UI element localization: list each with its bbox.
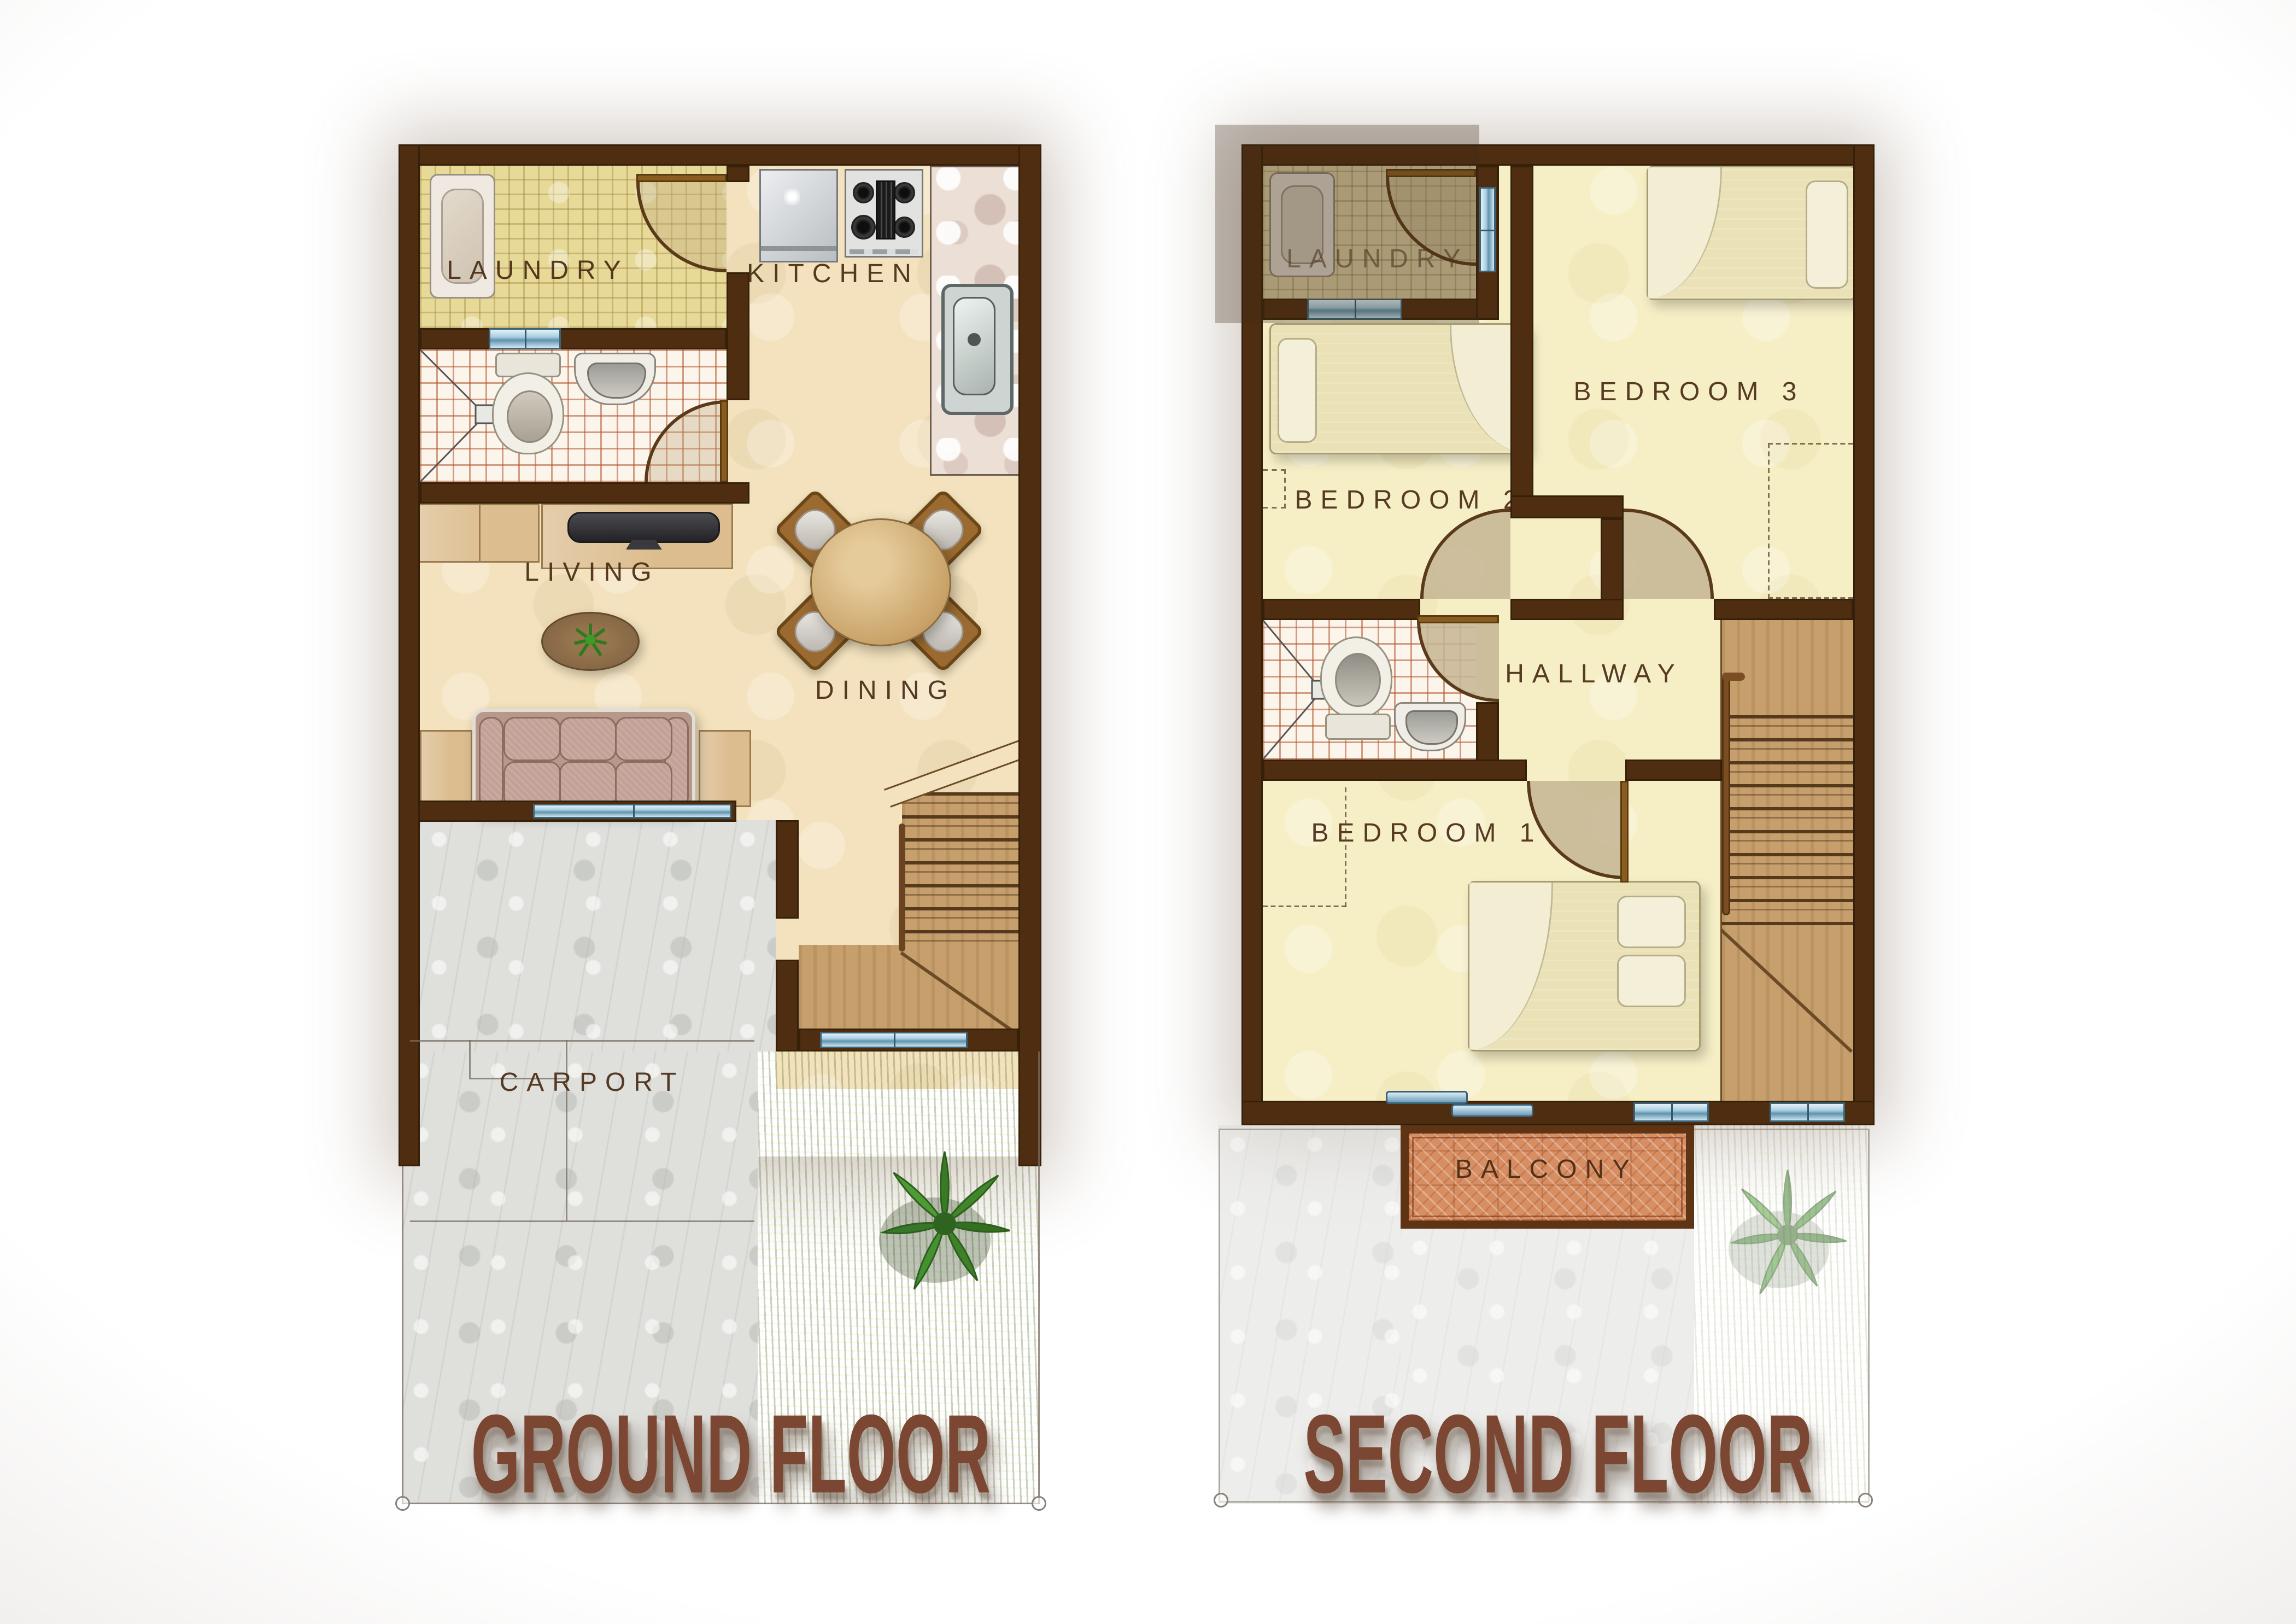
wall <box>727 272 749 400</box>
room-label-laundry: LAUNDRY <box>423 258 653 287</box>
toilet2-tank <box>1325 714 1391 740</box>
wall <box>420 328 727 349</box>
wall <box>1625 760 1722 781</box>
ground-floor-title: GROUND FLOOR <box>471 1388 982 1518</box>
front-window <box>1633 1102 1709 1122</box>
wall <box>1714 599 1853 620</box>
ground-floor-plan: LAUNDRY KITCHEN LIVING DINING CARPORT <box>399 144 1041 1362</box>
laundry-window <box>489 328 561 349</box>
slab-joint <box>410 1040 754 1042</box>
tv-cabinet <box>417 504 540 563</box>
carport-floor <box>420 820 776 1051</box>
boundary-line <box>402 1166 403 1504</box>
floorplan-canvas: LAUNDRY KITCHEN LIVING DINING CARPORT LA… <box>0 0 2296 1624</box>
staircase-flight <box>902 792 1018 945</box>
exterior-wall-top <box>399 144 1041 166</box>
room-label-hallway: HALLWAY <box>1455 661 1733 691</box>
toilet-bowl <box>492 372 564 454</box>
wall <box>420 482 749 504</box>
slab-joint <box>410 1220 754 1222</box>
survey-peg <box>1214 1493 1228 1508</box>
stair-handrail <box>1722 673 1730 915</box>
balcony-slider-panel <box>1386 1091 1468 1104</box>
second-floor-plan: LAUNDRY BEDROOM 2 BEDROOM 3 <box>1241 144 1875 1362</box>
survey-peg <box>1858 1493 1873 1508</box>
exterior-wall-right <box>1853 144 1875 1125</box>
exterior-wall-right <box>1018 144 1041 1166</box>
bed-pillow <box>1806 180 1848 289</box>
ghost-overlay <box>1215 125 1479 323</box>
bedroom1-door-leaf <box>1620 781 1629 883</box>
bedroom3-side-window <box>1479 187 1496 272</box>
wall <box>1510 166 1533 518</box>
wall <box>776 820 799 919</box>
dining-table <box>810 518 951 646</box>
laundry-door-leaf <box>636 174 727 182</box>
survey-peg <box>395 1496 410 1511</box>
survey-peg <box>1032 1496 1046 1511</box>
stair-stringer <box>899 823 905 951</box>
toilet2-bowl <box>1320 636 1392 718</box>
wall <box>1510 599 1624 620</box>
boundary-line <box>1038 1051 1040 1504</box>
living-window <box>533 804 731 819</box>
wall <box>727 166 749 182</box>
potted-plant-icon <box>571 620 610 659</box>
stair-edge <box>1720 620 1722 1101</box>
second-floor-title: SECOND FLOOR <box>1298 1388 1818 1518</box>
room-label-balcony: BALCONY <box>1415 1156 1678 1186</box>
stove-cooktop <box>845 169 923 258</box>
wall <box>1510 495 1624 518</box>
exterior-wall-left <box>399 144 420 1166</box>
room-label-bedroom3: BEDROOM 3 <box>1542 379 1837 408</box>
balcony-slider-panel <box>1451 1104 1533 1117</box>
slab-joint <box>566 1079 567 1220</box>
bed-fold <box>1648 167 1722 299</box>
bedroom3-bed <box>1647 166 1856 300</box>
room-label-carport: CARPORT <box>461 1070 723 1099</box>
bed-fold <box>1469 883 1553 1050</box>
sofa-side-table-left <box>420 730 472 807</box>
bed-pillow <box>1617 955 1686 1007</box>
bedroom1-bed <box>1468 881 1701 1051</box>
bathroom2-door-leaf <box>1417 615 1499 623</box>
staircase-treads <box>1722 715 1853 928</box>
bed-pillow <box>1278 338 1317 443</box>
wall <box>1263 599 1420 620</box>
room-label-dining: DINING <box>746 677 1025 707</box>
closet-outline <box>1263 787 1346 907</box>
sofa-side-table-right <box>699 730 751 807</box>
closet-line <box>1263 906 1346 909</box>
closet-outline <box>1768 443 1853 599</box>
bedroom2-bed <box>1269 323 1528 454</box>
kitchen-sink <box>941 284 1014 415</box>
sofa-armrest-left <box>479 717 503 809</box>
room-label-kitchen: KITCHEN <box>694 261 973 290</box>
shower-corner-icon <box>420 349 495 482</box>
wall <box>776 960 799 1051</box>
bathroom-door-leaf <box>720 400 728 482</box>
wall <box>1263 760 1527 781</box>
fern-plant-icon <box>863 1138 1027 1302</box>
fridge <box>759 169 838 262</box>
room-label-living: LIVING <box>461 559 723 589</box>
sofa <box>472 709 695 814</box>
porch-window <box>820 1032 968 1048</box>
closet-outline <box>1263 469 1286 509</box>
stair-window <box>1770 1102 1845 1122</box>
tv-set <box>567 512 720 543</box>
bed-pillow <box>1617 896 1686 948</box>
